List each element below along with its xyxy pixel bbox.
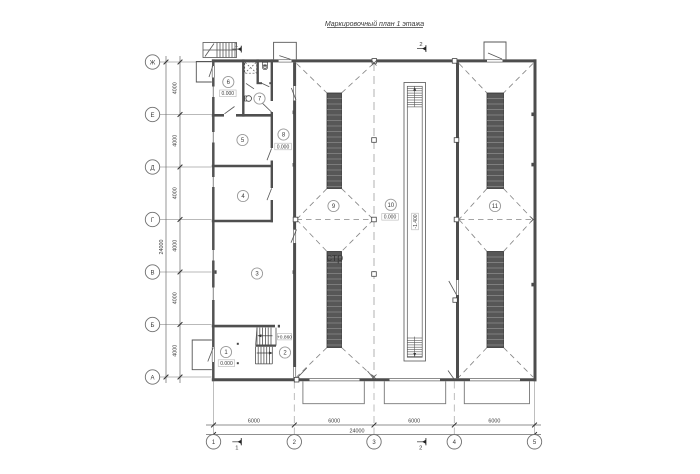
svg-text:4000: 4000 bbox=[173, 292, 179, 304]
svg-text:0.000: 0.000 bbox=[384, 215, 397, 221]
svg-text:24000: 24000 bbox=[159, 240, 165, 255]
svg-text:4000: 4000 bbox=[173, 135, 179, 147]
svg-text:4000: 4000 bbox=[173, 240, 179, 252]
svg-text:Д: Д bbox=[150, 165, 154, 171]
svg-text:+0.860: +0.860 bbox=[277, 334, 292, 340]
svg-text:6000: 6000 bbox=[488, 419, 500, 425]
svg-text:стр: стр bbox=[327, 252, 344, 264]
svg-text:10: 10 bbox=[387, 203, 394, 209]
svg-text:В: В bbox=[150, 270, 154, 276]
svg-text:4000: 4000 bbox=[173, 345, 179, 357]
svg-text:6000: 6000 bbox=[248, 419, 260, 425]
svg-text:Е: Е bbox=[150, 113, 154, 119]
svg-text:11: 11 bbox=[492, 204, 499, 210]
svg-text:0.000: 0.000 bbox=[277, 144, 290, 150]
svg-text:1: 1 bbox=[235, 445, 238, 451]
svg-text:А: А bbox=[150, 375, 154, 381]
svg-text:4000: 4000 bbox=[173, 187, 179, 199]
svg-text:4000: 4000 bbox=[173, 82, 179, 94]
svg-text:24000: 24000 bbox=[350, 428, 365, 434]
svg-text:6000: 6000 bbox=[408, 419, 420, 425]
svg-text:2: 2 bbox=[419, 445, 422, 451]
svg-text:0.000: 0.000 bbox=[220, 361, 233, 367]
svg-text:Ж: Ж bbox=[150, 60, 156, 66]
svg-text:6000: 6000 bbox=[328, 419, 340, 425]
svg-text:2: 2 bbox=[419, 42, 422, 48]
svg-text:0.000: 0.000 bbox=[222, 91, 235, 97]
svg-text:Маркировочный план 1 этажа: Маркировочный план 1 этажа bbox=[325, 20, 424, 28]
svg-text:Б: Б bbox=[151, 323, 155, 329]
svg-text:-1.400: -1.400 bbox=[413, 214, 419, 228]
